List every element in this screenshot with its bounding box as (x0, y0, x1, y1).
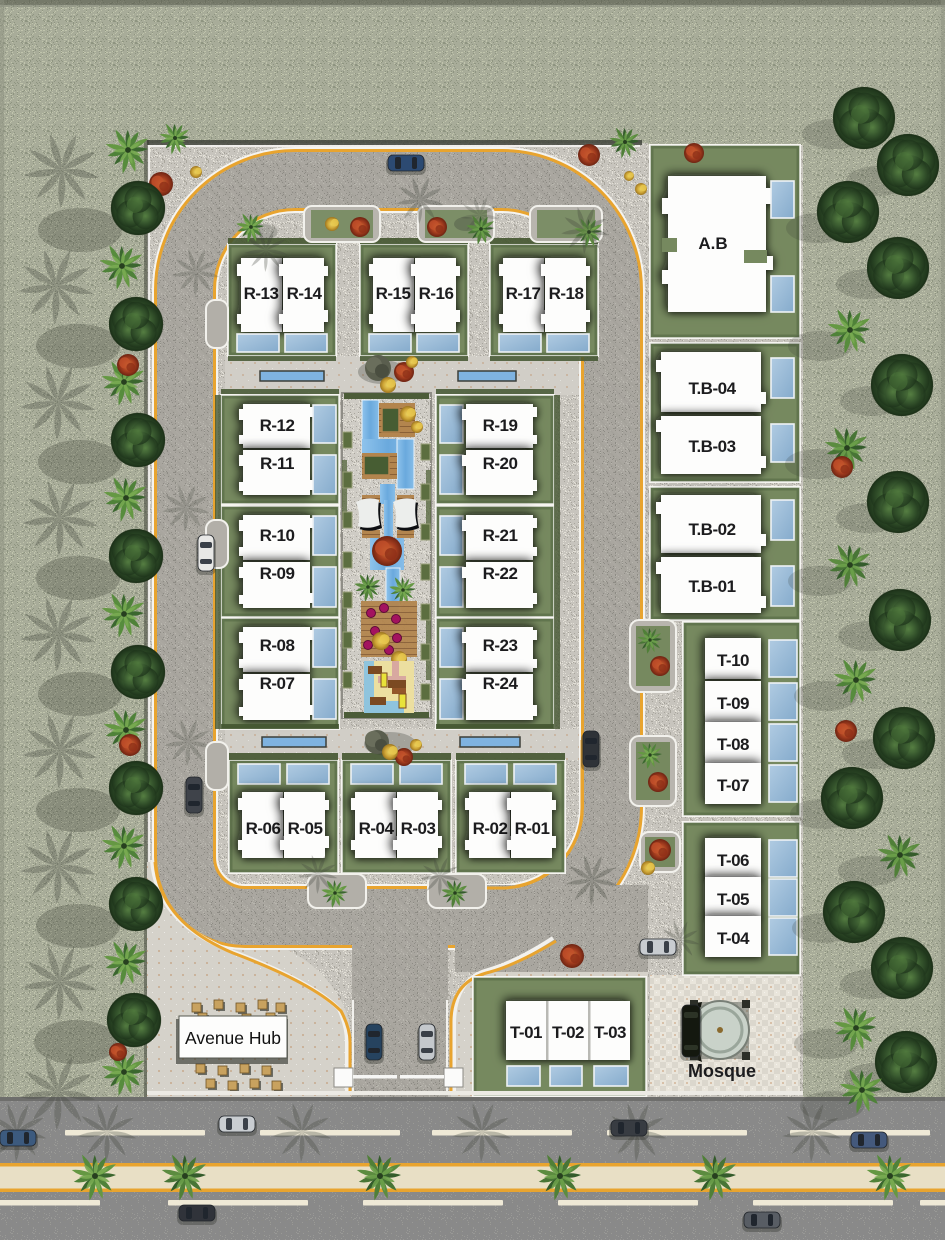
svg-text:R-16: R-16 (419, 284, 454, 303)
svg-text:T.B-02: T.B-02 (688, 520, 735, 539)
svg-text:R-12: R-12 (260, 416, 295, 435)
svg-text:R-18: R-18 (549, 284, 584, 303)
svg-text:R-22: R-22 (483, 564, 518, 583)
svg-text:R-01: R-01 (515, 819, 550, 838)
svg-text:R-13: R-13 (244, 284, 279, 303)
svg-text:R-24: R-24 (483, 674, 519, 693)
svg-text:R-14: R-14 (287, 284, 323, 303)
svg-text:T-08: T-08 (717, 735, 749, 754)
svg-text:R-23: R-23 (483, 636, 518, 655)
svg-text:R-20: R-20 (483, 454, 518, 473)
svg-text:R-05: R-05 (288, 819, 323, 838)
svg-text:R-06: R-06 (246, 819, 281, 838)
svg-text:Avenue Hub: Avenue Hub (185, 1028, 281, 1048)
svg-text:Mosque: Mosque (688, 1061, 756, 1081)
svg-text:R-10: R-10 (260, 526, 295, 545)
svg-text:R-03: R-03 (401, 819, 436, 838)
svg-text:R-17: R-17 (506, 284, 541, 303)
svg-text:R-15: R-15 (376, 284, 411, 303)
svg-text:T-07: T-07 (717, 776, 749, 795)
svg-text:T-02: T-02 (552, 1023, 584, 1042)
svg-text:T.B-01: T.B-01 (688, 577, 735, 596)
svg-text:T-06: T-06 (717, 851, 749, 870)
svg-text:T-05: T-05 (717, 890, 749, 909)
svg-text:R-08: R-08 (260, 636, 295, 655)
svg-text:R-09: R-09 (260, 564, 295, 583)
svg-text:R-19: R-19 (483, 416, 518, 435)
svg-text:A.B: A.B (698, 234, 727, 253)
svg-text:R-04: R-04 (359, 819, 395, 838)
svg-text:T-10: T-10 (717, 651, 749, 670)
svg-text:T-04: T-04 (717, 929, 750, 948)
svg-text:R-11: R-11 (260, 454, 294, 473)
svg-text:R-02: R-02 (473, 819, 508, 838)
svg-text:T.B-03: T.B-03 (688, 437, 735, 456)
svg-text:R-07: R-07 (260, 674, 295, 693)
svg-text:T.B-04: T.B-04 (688, 379, 736, 398)
svg-text:T-09: T-09 (717, 694, 749, 713)
svg-text:R-21: R-21 (483, 526, 518, 545)
svg-text:T-03: T-03 (594, 1023, 626, 1042)
svg-text:T-01: T-01 (510, 1023, 542, 1042)
